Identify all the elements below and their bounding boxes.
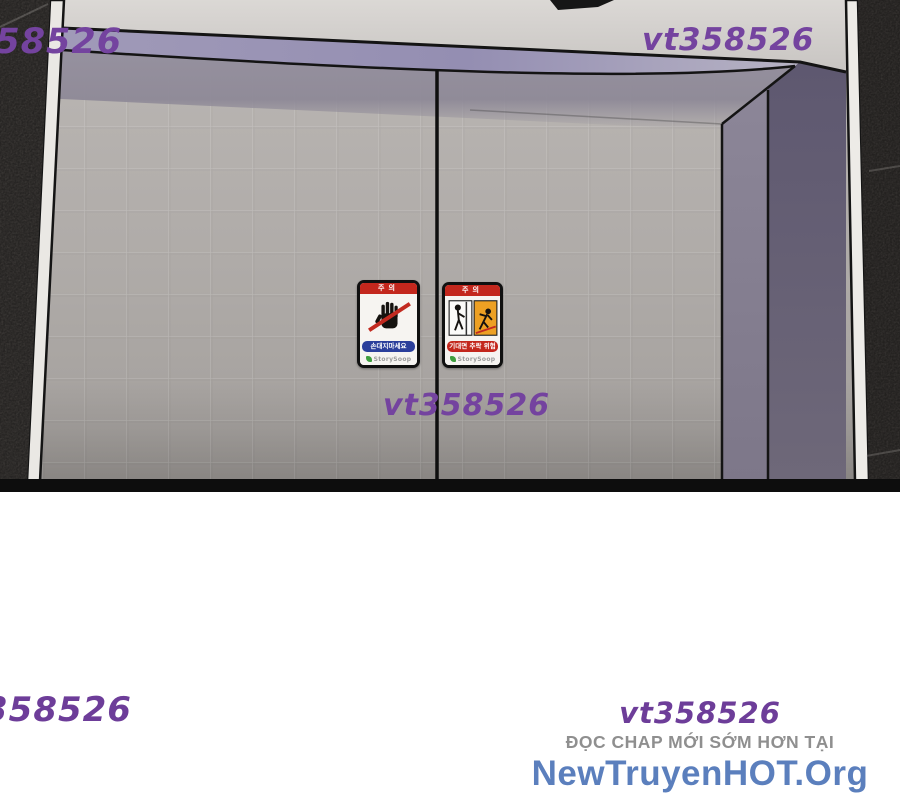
leaf-logo-icon [450, 356, 456, 362]
site-name: NewTruyenHOT.Org [520, 754, 880, 794]
warning-sticker-fall-hazard: 주의 기대면 추락 위험 [442, 282, 503, 368]
warning-sticker-no-touch: 주의 손대지마세요 StorySoop [357, 280, 420, 368]
no-touch-hand-icon [365, 299, 413, 335]
promo-tagline: ĐỌC CHAP MỚI SỚM HƠN TẠI [520, 732, 880, 753]
sticker-caption: 기대면 추락 위험 [447, 341, 498, 352]
comic-page: 주의 손대지마세요 StorySoop [0, 0, 900, 800]
site-promo-block: vt358526 ĐỌC CHAP MỚI SỚM HƠN TẠI NewTru… [520, 696, 880, 794]
watermark-center: vt358526 [383, 388, 550, 423]
watermark-top-right: vt358526 [642, 22, 814, 58]
sticker-header: 주의 [445, 285, 500, 296]
sticker-header: 주의 [360, 283, 417, 294]
watermark-top-left: 358526 [0, 22, 122, 62]
fall-hazard-pictogram-icon [448, 300, 498, 336]
jamb-front-face [768, 62, 846, 481]
panel-bottom-border [0, 479, 900, 492]
sticker-brand: StorySoop [458, 356, 496, 363]
watermark-bottom-left: 358526 [0, 690, 132, 730]
sticker-caption: 손대지마세요 [362, 341, 415, 352]
leaf-logo-icon [366, 356, 372, 362]
watermark-bottom-right: vt358526 [520, 696, 880, 730]
sticker-brand: StorySoop [374, 356, 412, 363]
jamb-inner-face [722, 88, 768, 481]
elevator-door-panel: 주의 손대지마세요 StorySoop [0, 0, 900, 492]
